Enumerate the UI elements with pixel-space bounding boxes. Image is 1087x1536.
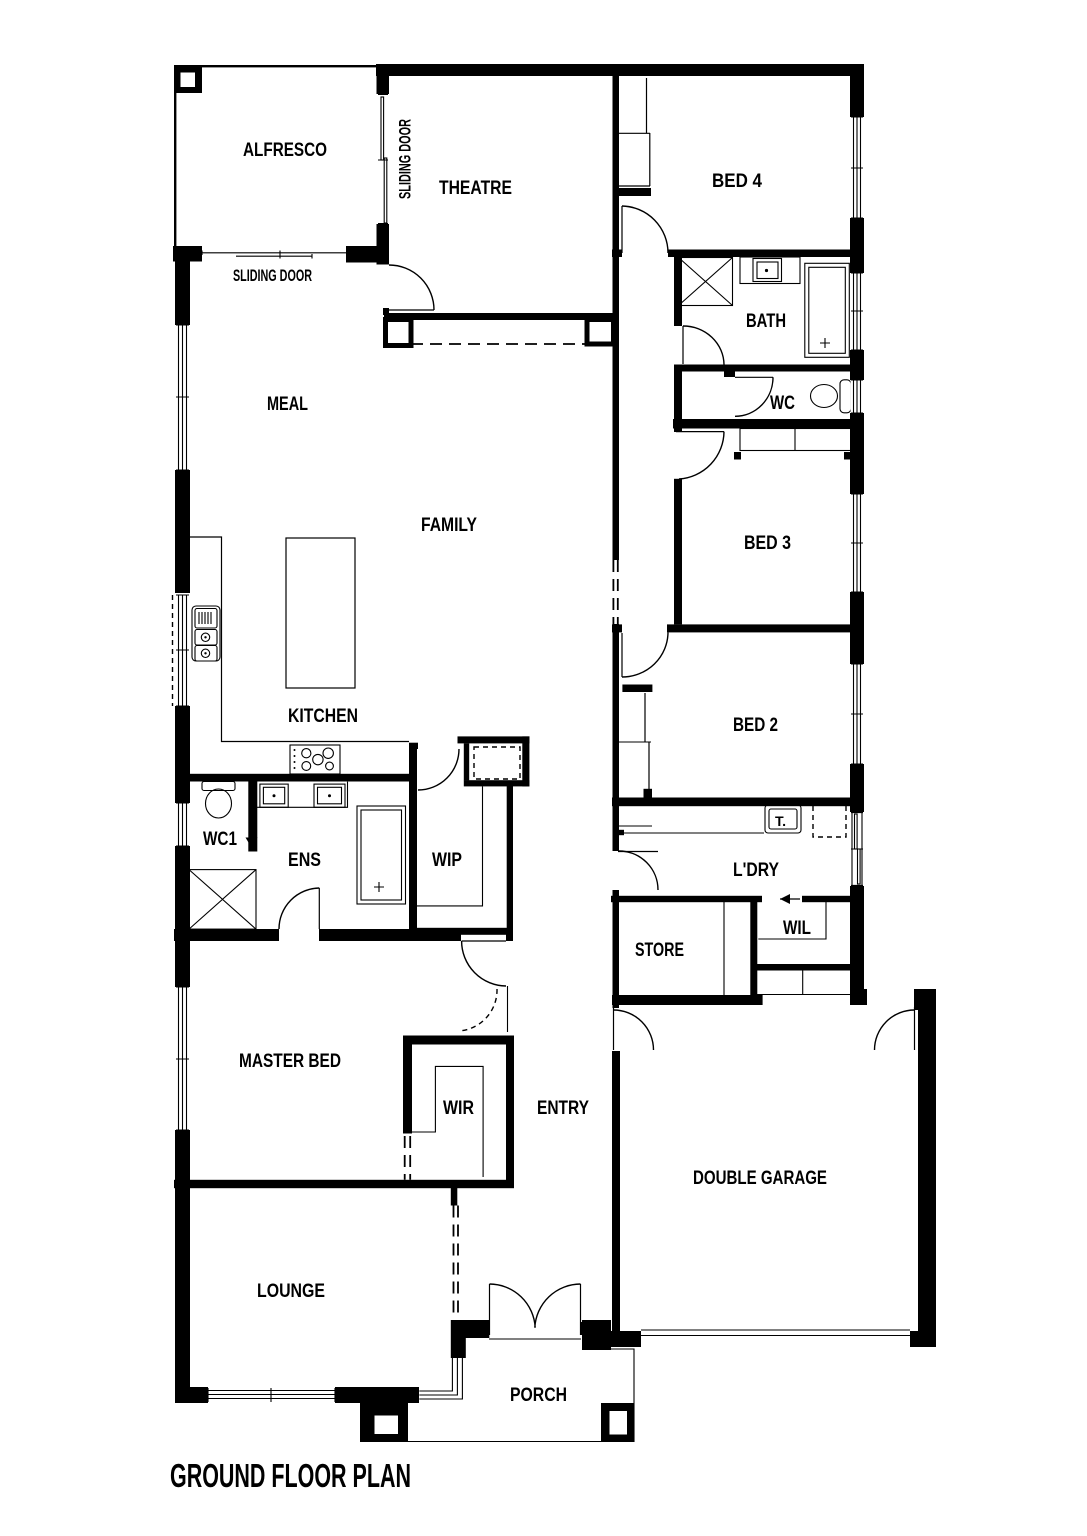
svg-text:STORE: STORE (635, 940, 684, 961)
svg-text:L'DRY: L'DRY (733, 860, 779, 881)
svg-text:WC1: WC1 (203, 829, 237, 850)
svg-text:T.: T. (775, 813, 786, 829)
svg-text:WC: WC (770, 393, 795, 414)
svg-text:ALFRESCO: ALFRESCO (243, 140, 327, 161)
svg-text:DOUBLE GARAGE: DOUBLE GARAGE (693, 1168, 827, 1189)
svg-text:KITCHEN: KITCHEN (288, 706, 358, 727)
svg-text:PORCH: PORCH (510, 1385, 567, 1406)
svg-text:THEATRE: THEATRE (439, 178, 512, 199)
svg-text:MEAL: MEAL (267, 394, 308, 415)
svg-text:WIL: WIL (783, 918, 811, 939)
svg-text:ENTRY: ENTRY (537, 1098, 589, 1119)
svg-text:GROUND FLOOR PLAN: GROUND FLOOR PLAN (170, 1457, 411, 1494)
svg-text:WIP: WIP (432, 850, 462, 871)
svg-text:MASTER BED: MASTER BED (239, 1051, 341, 1072)
svg-text:BATH: BATH (746, 311, 786, 332)
svg-text:ENS: ENS (288, 850, 321, 871)
svg-text:SLIDING DOOR: SLIDING DOOR (397, 119, 415, 199)
svg-text:FAMILY: FAMILY (421, 515, 477, 536)
svg-text:SLIDING DOOR: SLIDING DOOR (233, 267, 312, 285)
svg-text:BED 4: BED 4 (712, 171, 762, 192)
svg-text:WIR: WIR (443, 1098, 474, 1119)
svg-text:BED 3: BED 3 (744, 533, 791, 554)
svg-text:LOUNGE: LOUNGE (257, 1281, 325, 1302)
svg-text:BED 2: BED 2 (733, 715, 778, 736)
